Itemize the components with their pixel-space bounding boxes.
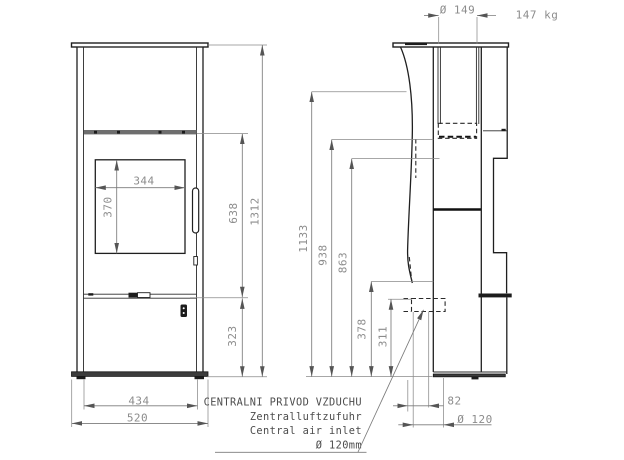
dim-323: 323 [226,298,242,376]
lower-door-handle-icon [181,305,188,318]
dim-label-323: 323 [226,325,239,346]
note-line-4: Ø 120mm [316,440,362,452]
note-line-3: Central air inlet [250,425,362,437]
note-line-2: Zentralluftzufuhr [250,411,362,423]
drawing-canvas: 344 370 638 323 1312 434 [0,0,624,460]
dim-label-344: 344 [133,175,154,188]
side-view [393,43,512,379]
rear-band [479,294,512,298]
front-top-plate [72,43,209,47]
dim-label-863: 863 [337,252,350,273]
dim-378: 378 [356,282,372,377]
dim-863: 863 [337,159,352,377]
dim-label-flue-diameter: Ø 149 [440,4,476,17]
ash-door-latch [129,293,138,298]
dim-311: 311 [377,299,392,376]
air-inlet-dashed [412,299,446,312]
dim-638: 638 [227,134,242,298]
dim-inlet-offset: 82 [393,312,462,428]
dim-label-1312: 1312 [249,197,262,226]
dim-label-434: 434 [128,395,149,408]
door-latch [194,257,198,266]
dim-label-inlet-diameter: Ø 120 [457,413,493,426]
technical-drawing-stove: 344 370 638 323 1312 434 [0,0,624,460]
front-base [72,372,209,377]
weight-label: 147 kg [516,9,559,22]
dim-inlet-diameter: Ø 120 [398,413,493,426]
dim-1312: 1312 [249,45,263,377]
side-base [433,374,505,377]
note-line-1: CENTRALNI PRIVOD VZDUCHU [204,397,362,409]
dim-label-1133: 1133 [297,224,310,253]
side-front-curve [401,47,413,283]
dim-flue-diameter: Ø 149 [424,4,496,45]
front-view [72,43,209,379]
dim-label-82: 82 [447,395,461,408]
dim-label-638: 638 [227,202,240,223]
dimensions-side: 1133 938 863 378 311 Ø 149 [297,4,558,428]
dimensions-front: 344 370 638 323 1312 434 [72,45,267,427]
dim-glass-height: 370 [102,160,117,253]
dim-938: 938 [317,140,332,377]
dim-label-311: 311 [377,326,390,347]
dim-label-938: 938 [317,244,330,265]
dim-label-370: 370 [102,196,115,217]
dim-glass-width: 344 [95,175,185,188]
dim-1133: 1133 [297,92,312,377]
door-handle [193,188,199,233]
dim-label-520: 520 [127,412,148,425]
front-shelf-band [84,130,197,134]
dim-434: 434 [84,380,198,410]
dim-label-378: 378 [356,318,369,339]
side-back-wall [494,47,508,293]
